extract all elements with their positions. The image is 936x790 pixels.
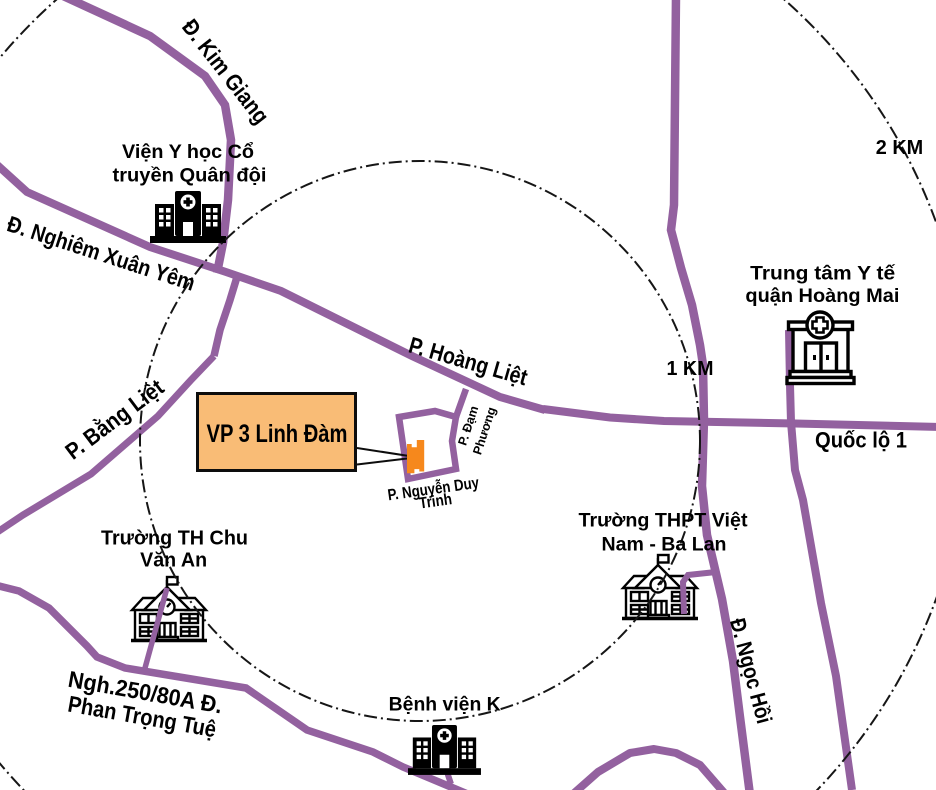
svg-text:VP 3 Linh Đàm: VP 3 Linh Đàm (207, 420, 348, 448)
svg-text:Quốc lộ 1: Quốc lộ 1 (815, 428, 907, 453)
svg-text:Bệnh viện K: Bệnh viện K (389, 695, 501, 716)
svg-text:1 KM: 1 KM (667, 358, 714, 380)
svg-text:Nam - Ba Lan: Nam - Ba Lan (602, 534, 727, 556)
svg-text:quận Hoàng Mai: quận Hoàng Mai (745, 286, 899, 307)
svg-text:Trường THPT Việt: Trường THPT Việt (579, 509, 749, 531)
svg-text:2 KM: 2 KM (876, 137, 924, 159)
svg-text:Trung tâm Y tế: Trung tâm Y tế (750, 264, 895, 285)
svg-text:Viện Y học Cổ: Viện Y học Cổ (122, 141, 254, 163)
svg-text:Trường TH Chu: Trường TH Chu (101, 528, 248, 550)
svg-text:truyền Quân đội: truyền Quân đội (113, 165, 267, 187)
svg-text:Văn An: Văn An (140, 550, 207, 572)
